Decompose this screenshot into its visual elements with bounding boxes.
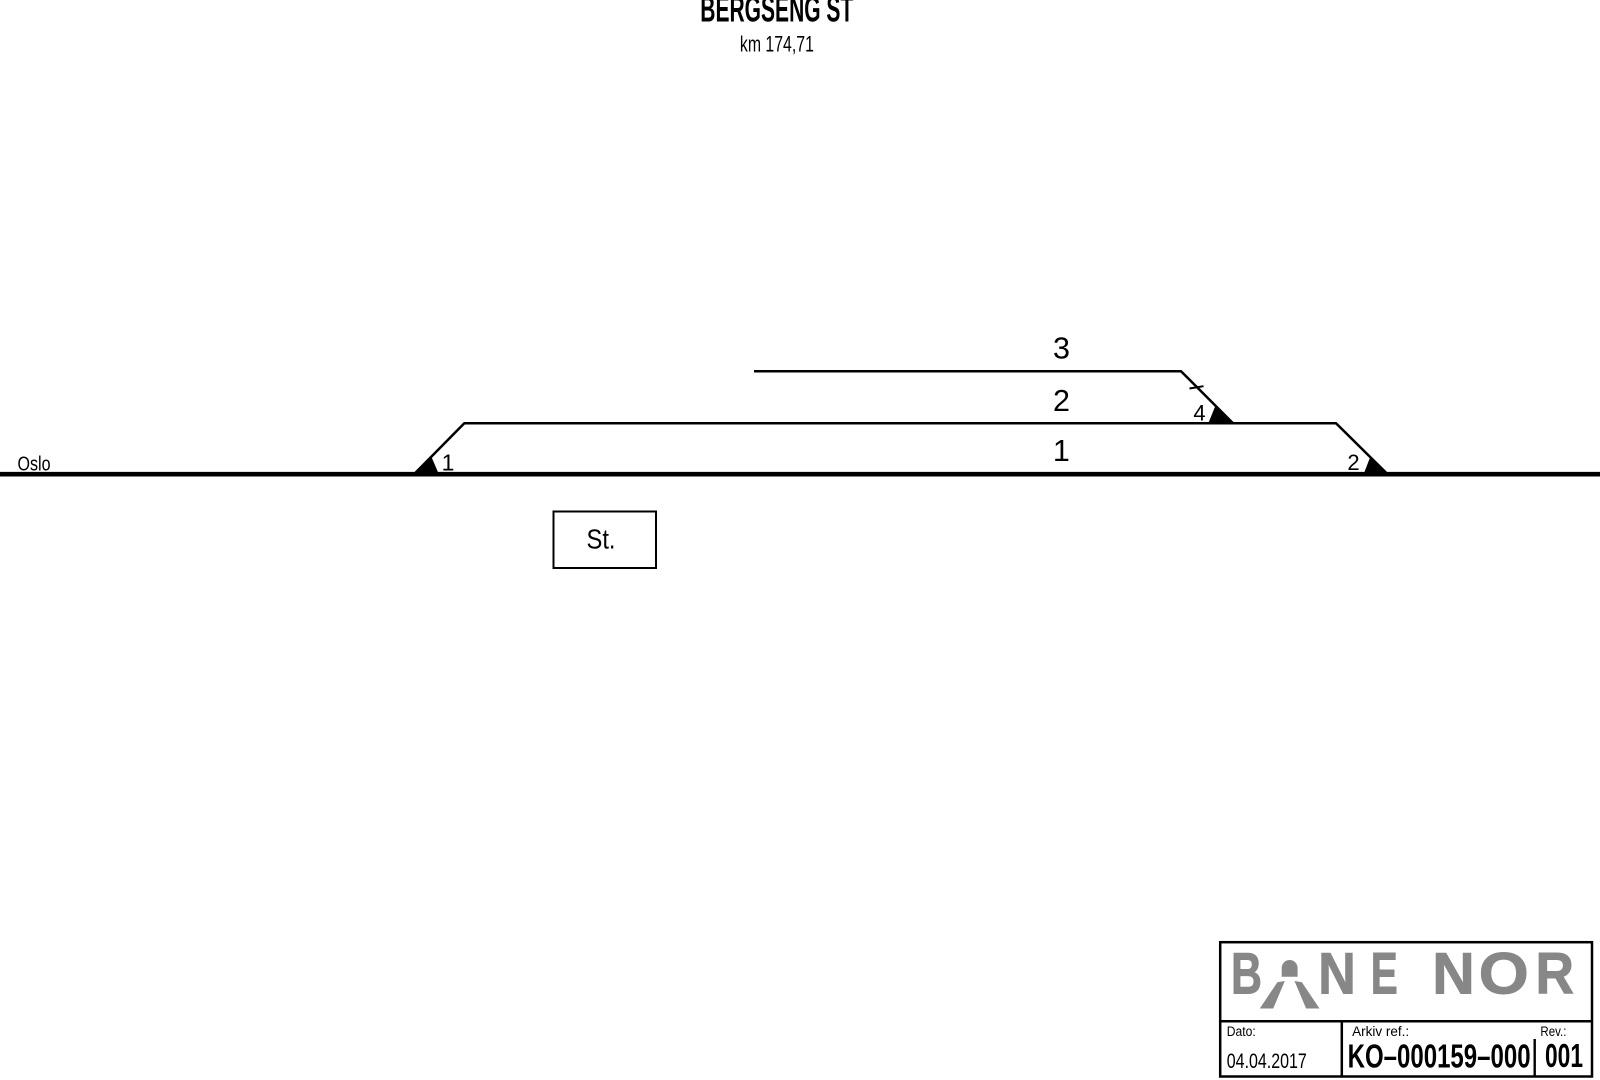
svg-text:4: 4: [1193, 400, 1205, 425]
svg-text:1: 1: [1053, 434, 1070, 468]
svg-text:04.04.2017: 04.04.2017: [1227, 1048, 1307, 1073]
svg-text:E: E: [1371, 942, 1398, 1007]
svg-text:2: 2: [1053, 384, 1070, 418]
svg-text:N: N: [1318, 942, 1356, 1007]
svg-text:BERGSENG ST: BERGSENG ST: [700, 0, 853, 30]
svg-text:3: 3: [1053, 332, 1070, 366]
svg-text:Dato:: Dato:: [1227, 1024, 1256, 1040]
svg-text:KO–000159–000: KO–000159–000: [1348, 1037, 1531, 1074]
svg-text:1: 1: [442, 449, 455, 475]
svg-text:2: 2: [1347, 450, 1359, 475]
svg-text:N: N: [1432, 942, 1475, 1007]
svg-text:km 174,71: km 174,71: [740, 31, 814, 56]
svg-text:001: 001: [1545, 1037, 1583, 1074]
svg-text:O: O: [1479, 942, 1529, 1007]
svg-text:B: B: [1231, 942, 1262, 1007]
svg-text:R: R: [1536, 942, 1575, 1007]
svg-text:St.: St.: [587, 523, 616, 554]
